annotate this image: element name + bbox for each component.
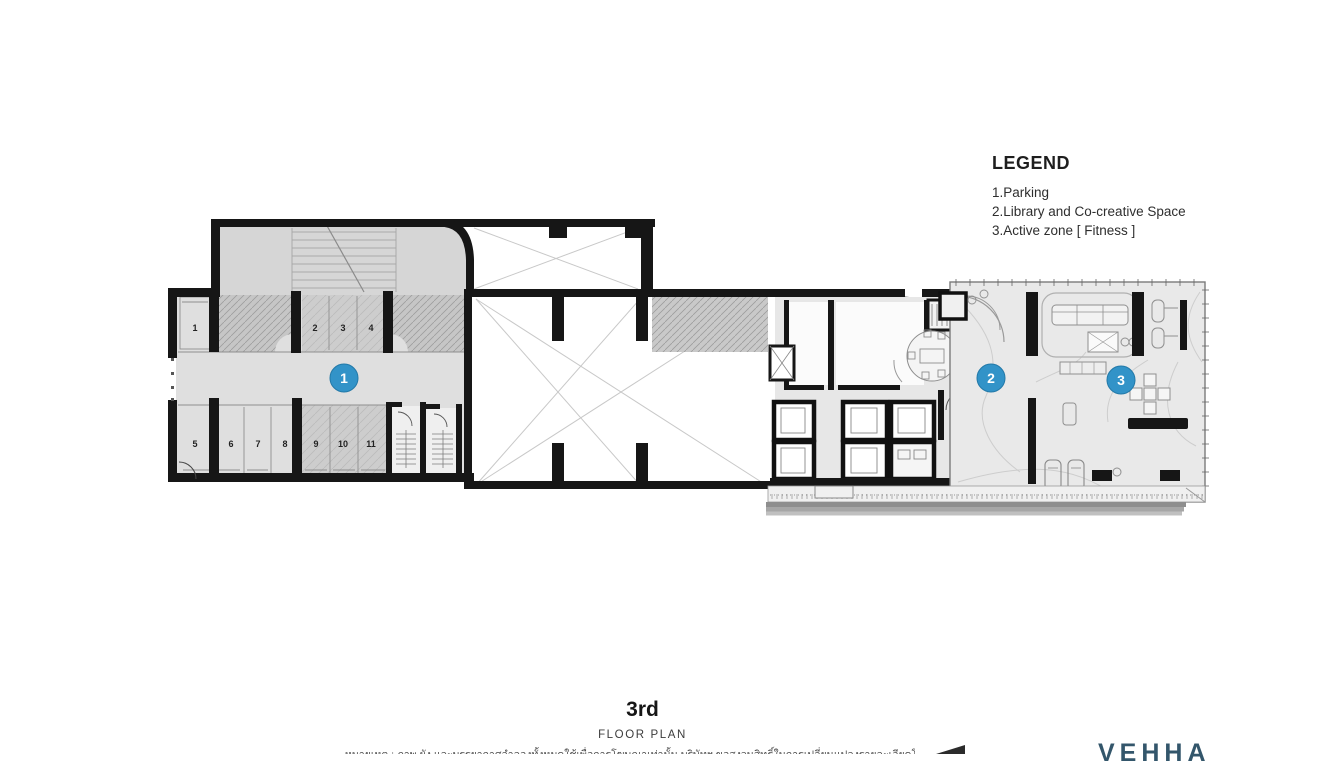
- legend-item-library: 2.Library and Co-creative Space: [992, 202, 1186, 221]
- floor-plan-label: FLOOR PLAN: [540, 729, 745, 741]
- hatch-band-right: [652, 297, 768, 352]
- stall-5: 5: [192, 439, 197, 449]
- legend-item-parking: 1.Parking: [992, 183, 1186, 202]
- disclaimer-text-clipped: หมายเหตุ : ภาพ ผัง และบรรยากาศจำลองทั้งห…: [345, 746, 915, 754]
- floor-plan-drawing: 1 2 3 4 5 6 7 8 9 10 11: [0, 0, 1342, 754]
- title-block: 3rd FLOOR PLAN: [540, 698, 745, 741]
- balcony-strip: [766, 486, 1205, 516]
- balcony-notch: [815, 486, 853, 498]
- stall-11: 11: [366, 439, 376, 449]
- stall-8: 8: [282, 439, 287, 449]
- stall-1: 1: [192, 323, 197, 333]
- stall-7: 7: [255, 439, 260, 449]
- wall-opening-ticks: [171, 358, 174, 401]
- ramp-area: [215, 223, 470, 295]
- void-cross-lines: [474, 228, 766, 485]
- stall-6: 6: [228, 439, 233, 449]
- legend: LEGEND 1.Parking 2.Library and Co-creati…: [992, 153, 1186, 240]
- shaft-x-box: [770, 346, 794, 380]
- north-arrow-icon: [936, 745, 965, 754]
- stall-10: 10: [338, 439, 348, 449]
- legend-item-fitness: 3.Active zone [ Fitness ]: [992, 221, 1186, 240]
- marker-1-label: 1: [340, 370, 348, 386]
- stall-9: 9: [313, 439, 318, 449]
- marker-fitness: 3: [1107, 366, 1135, 394]
- marker-3-label: 3: [1117, 372, 1125, 388]
- marker-parking: 1: [330, 364, 358, 392]
- floor-number: 3rd: [540, 698, 745, 722]
- legend-title: LEGEND: [992, 153, 1186, 174]
- stall-2: 2: [312, 323, 317, 333]
- stall-3: 3: [340, 323, 345, 333]
- fitness-zone: [940, 279, 1209, 502]
- marker-library: 2: [977, 364, 1005, 392]
- parking-zone: 1 2 3 4 5 6 7 8 9 10 11: [168, 219, 655, 482]
- marker-2-label: 2: [987, 370, 995, 386]
- stall-4: 4: [368, 323, 373, 333]
- elevator-bank: [774, 402, 934, 479]
